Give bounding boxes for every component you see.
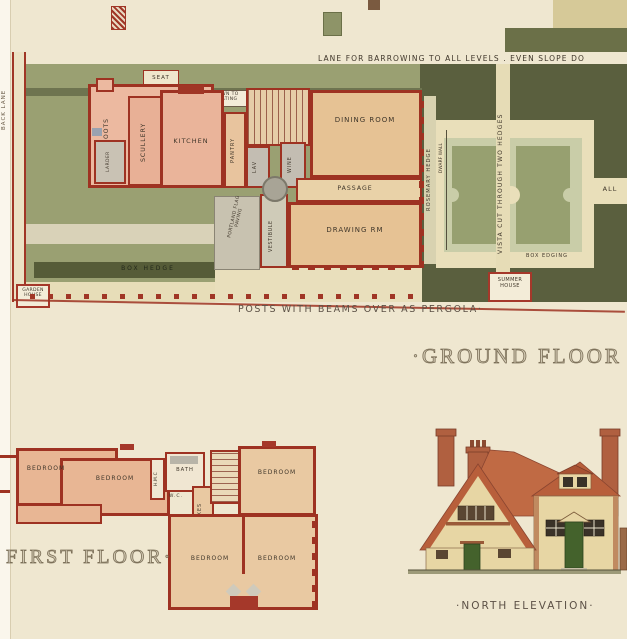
south-pier-wall xyxy=(292,265,420,270)
brick-quoin-left xyxy=(534,496,539,570)
pergola-posts xyxy=(30,294,422,299)
garden-wall-stub xyxy=(620,528,627,570)
small-top-fragment xyxy=(368,0,380,10)
range-symbol xyxy=(178,85,204,94)
first-floor-wall-stub-1 xyxy=(0,455,16,458)
hedge-fragment xyxy=(323,12,342,36)
chimney-symbol-fragment xyxy=(111,6,126,30)
top-right-paper-band xyxy=(553,0,627,28)
ff-chimney-mark-1 xyxy=(120,444,134,450)
dwarf-wall-line xyxy=(446,130,447,250)
back-lane-label: BACK LANE xyxy=(1,62,7,157)
dining-room-label: DINING ROOM xyxy=(330,116,400,124)
summer-house-box: SUMMER HOUSE xyxy=(488,272,532,302)
paving-circle xyxy=(262,176,288,202)
left-chimney xyxy=(436,429,456,486)
cross-path xyxy=(26,224,216,244)
right-window-left xyxy=(546,520,566,536)
vestibule xyxy=(260,194,288,268)
back-lane-strip xyxy=(12,52,26,302)
ff-bedroom-right-label: BEDROOM xyxy=(240,470,314,477)
seat-label: SEAT xyxy=(144,75,178,81)
first-floor-title: FIRST FLOOR· xyxy=(6,546,173,569)
kitchen-label: KITCHEN xyxy=(158,138,224,145)
left-small-window-2 xyxy=(498,549,511,558)
pergola-caption: POSTS WITH BEAMS OVER AS PERGOLA· xyxy=(238,304,483,315)
rosemary-hedge-label: ROSEMARY HEDGE xyxy=(426,110,432,250)
lawn-panel-right xyxy=(516,146,570,244)
panel-notch-left xyxy=(445,188,459,202)
ground-floor-title: ·GROUND FLOOR AN xyxy=(412,344,627,369)
dining-room xyxy=(310,90,422,178)
wine-label: WINE xyxy=(288,148,293,182)
box-edging-label: BOX EDGING xyxy=(514,254,580,260)
vestibule-label: VESTIBULE xyxy=(269,208,274,264)
scullery-label: SCULLERY xyxy=(140,110,147,174)
summer-house-label: SUMMER HOUSE xyxy=(490,278,530,290)
left-small-window xyxy=(436,550,448,559)
ff-hmc-label: H.M.C xyxy=(154,462,159,496)
ff-bedroom-bottom-right-label: BEDROOM xyxy=(248,556,306,563)
porch-north xyxy=(96,78,114,92)
pantry-label: PANTRY xyxy=(230,122,236,178)
ff-chimney-mark-2 xyxy=(262,441,276,447)
passage-label: PASSAGE xyxy=(310,185,400,192)
ff-bedroom-bottom-left-label: BEDROOM xyxy=(180,556,240,563)
first-floor-wall-stub-2 xyxy=(0,490,10,493)
drawing-room xyxy=(288,202,422,268)
ff-divider-wall xyxy=(242,516,245,574)
ff-bath-label: BATH xyxy=(166,468,204,474)
dwarf-wall-label: DWARF WALL xyxy=(438,132,443,184)
vista-label: VISTA CUT THROUGH TWO HEDGES xyxy=(497,72,504,296)
left-door xyxy=(460,541,484,570)
larder-label: LARDER xyxy=(106,146,111,178)
ground-line xyxy=(408,570,621,574)
half-timber-rail xyxy=(446,522,510,526)
lane-caption: LANE FOR BARROWING TO ALL LEVELS . EVEN … xyxy=(318,55,585,64)
gable-window xyxy=(458,506,494,520)
stair-hall xyxy=(246,88,310,146)
north-elevation-drawing xyxy=(402,422,627,580)
lav-label: LAV xyxy=(253,152,258,182)
scanned-architectural-drawing: LANE FOR BARROWING TO ALL LEVELS . EVEN … xyxy=(0,0,627,639)
drawing-room-label: DRAWING RM xyxy=(300,226,410,234)
ff-bedroom-right xyxy=(238,446,316,516)
panel-notch-right xyxy=(563,188,577,202)
north-elevation-caption: ·NORTH ELEVATION· xyxy=(456,600,595,612)
box-hedge-label: BOX HEDGE xyxy=(98,266,198,273)
right-window-right xyxy=(584,520,604,536)
top-right-hedge-band xyxy=(505,28,627,52)
all-label: ALL xyxy=(596,186,624,193)
ff-wc-label: W.C. xyxy=(164,494,188,499)
brick-quoin-right xyxy=(613,496,618,570)
ff-left-wing-tab xyxy=(16,504,102,524)
ff-bedroom-center-label: BEDROOM xyxy=(84,476,146,483)
ff-porch xyxy=(230,596,258,610)
ff-bathtub-symbol xyxy=(170,456,198,464)
ff-bedroom-left-label: BEDROOM xyxy=(18,466,74,473)
sink-symbol xyxy=(92,128,102,136)
ff-east-checker-wall xyxy=(312,516,317,608)
